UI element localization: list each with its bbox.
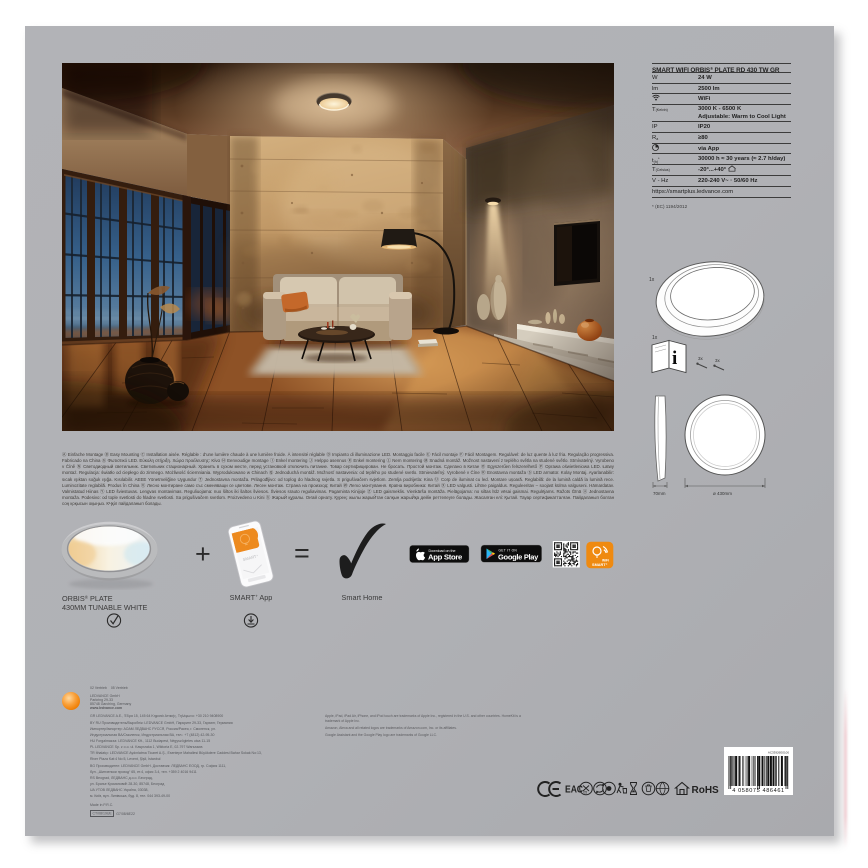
svg-text:430MM TUNABLE WHITE: 430MM TUNABLE WHITE xyxy=(62,603,148,612)
svg-text:=: = xyxy=(294,538,310,568)
svg-text:App Store: App Store xyxy=(428,553,463,562)
svg-text:RoHS: RoHS xyxy=(692,785,720,796)
svg-text:70mm: 70mm xyxy=(653,491,666,496)
svg-text:AC33926E0100: AC33926E0100 xyxy=(768,751,790,755)
svg-text:ORBIS® PLATE: ORBIS® PLATE xyxy=(62,594,113,603)
svg-text:+: + xyxy=(195,539,211,569)
svg-text:4 058075 486461: 4 058075 486461 xyxy=(732,788,785,794)
svg-text:1x: 1x xyxy=(649,277,655,283)
svg-text:SMART+ App: SMART+ App xyxy=(230,593,273,602)
svg-text:05: 05 xyxy=(583,790,587,794)
svg-text:Google Play: Google Play xyxy=(498,552,539,561)
svg-text:Smart Home: Smart Home xyxy=(342,593,383,602)
svg-text:1x: 1x xyxy=(652,335,658,341)
svg-text:3x: 3x xyxy=(715,358,721,363)
svg-text:i: i xyxy=(672,348,677,369)
svg-text:SMART⁺: SMART⁺ xyxy=(592,563,608,567)
svg-text:3x: 3x xyxy=(698,356,704,361)
svg-text:ø 430mm: ø 430mm xyxy=(713,491,732,496)
